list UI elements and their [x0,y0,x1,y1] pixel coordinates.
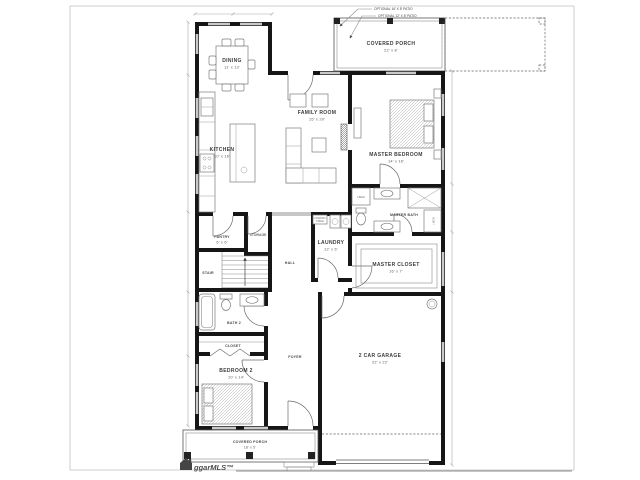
family-room: FAMILY ROOM 15' x 20' [286,94,347,183]
room-label-hall: HALL [285,261,296,265]
house-logo-icon [180,458,192,470]
room-label-linen-a: LINEN [357,196,365,199]
room-dims-master-bedroom: 14' x 16' [388,159,404,164]
floor-plan-page: COVERED PORCH 22' x 8' OPTIONAL 16' X 8'… [0,0,640,480]
optional-patio-post [539,65,545,71]
laundry: FOLDING TABLE LAUNDRY 12' x 6' [313,215,351,252]
room-dims-pantry: 6' x 6' [216,240,227,245]
garage: 2 CAR GARAGE 22' x 22' [322,299,441,464]
master-bedroom: MASTER BEDROOM 14' x 16' [354,89,441,164]
room-dims-family-room: 15' x 20' [309,117,325,122]
dresser [354,108,361,138]
master-bath: LINEN LINEN MASTER BATH [352,188,441,232]
toilet-tank [220,294,232,299]
room-dims-laundry: 12' x 6' [324,247,338,252]
toilet [357,213,366,225]
leader-line [350,16,376,38]
room-label-garage: 2 CAR GARAGE [359,353,402,359]
optional-patio-post [539,18,545,24]
optional-patio-note-2: OPTIONAL 12' X 8' PATIO [378,14,417,18]
sink [381,223,393,230]
dryer [341,215,351,228]
room-dims-garage: 22' x 22' [372,360,388,365]
room-label-family-room: FAMILY ROOM [298,110,337,116]
stairs: STAIR [202,252,268,288]
washer [330,215,340,228]
room-label-dining: DINING [222,58,242,64]
room-label-bath-2: BATH 2 [227,321,241,325]
floor-plan-drawing: COVERED PORCH 22' x 8' OPTIONAL 16' X 8'… [0,0,640,480]
kitchen-island [230,124,255,182]
room-label-storage: STORAGE [250,233,267,237]
optional-patio-note-1: OPTIONAL 16' X 8' PATIO [374,7,413,11]
room-dims-dining: 11' x 13' [224,65,240,70]
dining-furniture: DINING 11' x 13' [209,39,255,91]
room-label-pantry: PANTRY [214,235,230,239]
pantry: PANTRY 6' x 6' [214,235,230,245]
closet-2: CLOSET [199,342,264,348]
room-label-master-bath: MASTER BATH [390,213,418,217]
optional-patio-notes: OPTIONAL 16' X 8' PATIO OPTIONAL 12' X 8… [340,7,417,38]
room-dims-master-closet: 16' x 7' [389,269,403,274]
room-label-stair: STAIR [202,271,214,275]
toilet-tank [356,208,366,213]
kitchen: KITCHEN 10' x 16' [199,92,255,212]
bath-2: BATH 2 [199,294,264,330]
porch-post [184,452,191,459]
room-dims-covered-porch-bottom: 18' x 5' [244,446,256,450]
porch-post [308,452,315,459]
room-label-laundry: LAUNDRY [318,240,345,246]
folding-table-label-2: TABLE [316,220,324,223]
watermark-brand: ggarMLS™ [193,463,234,472]
porch-post [387,18,393,24]
room-label-kitchen: KITCHEN [210,147,235,153]
optional-patio-outline [445,18,545,71]
room-label-master-closet: MASTER CLOSET [372,262,419,268]
tv-console [341,124,347,150]
room-dims-covered-porch-top: 22' x 8' [384,48,398,53]
bedroom-2: BEDROOM 2 10' x 14' [202,368,253,424]
covered-porch-top: COVERED PORCH 22' x 8' [334,18,545,71]
porch-post [246,452,253,459]
room-dims-kitchen: 10' x 16' [214,154,230,159]
room-label-bedroom-2: BEDROOM 2 [219,368,252,374]
room-label-closet-2: CLOSET [225,344,241,348]
toilet [222,300,231,311]
room-label-covered-porch-bottom: COVERED PORCH [233,440,268,444]
room-label-linen-b: LINEN [433,217,436,225]
room-dims-bedroom-2: 10' x 14' [228,375,244,380]
porch-post [334,18,340,24]
room-label-master-bedroom: MASTER BEDROOM [369,152,423,158]
range [200,154,214,172]
porch-post [439,18,445,24]
water-heater [427,299,437,309]
room-label-foyer: FOYER [288,355,302,359]
bifold-closet-door [210,349,250,356]
sink [246,297,258,304]
leader-line [340,9,372,26]
room-label-covered-porch-top: COVERED PORCH [367,41,416,47]
front-steps [284,462,314,467]
sink [381,190,393,197]
